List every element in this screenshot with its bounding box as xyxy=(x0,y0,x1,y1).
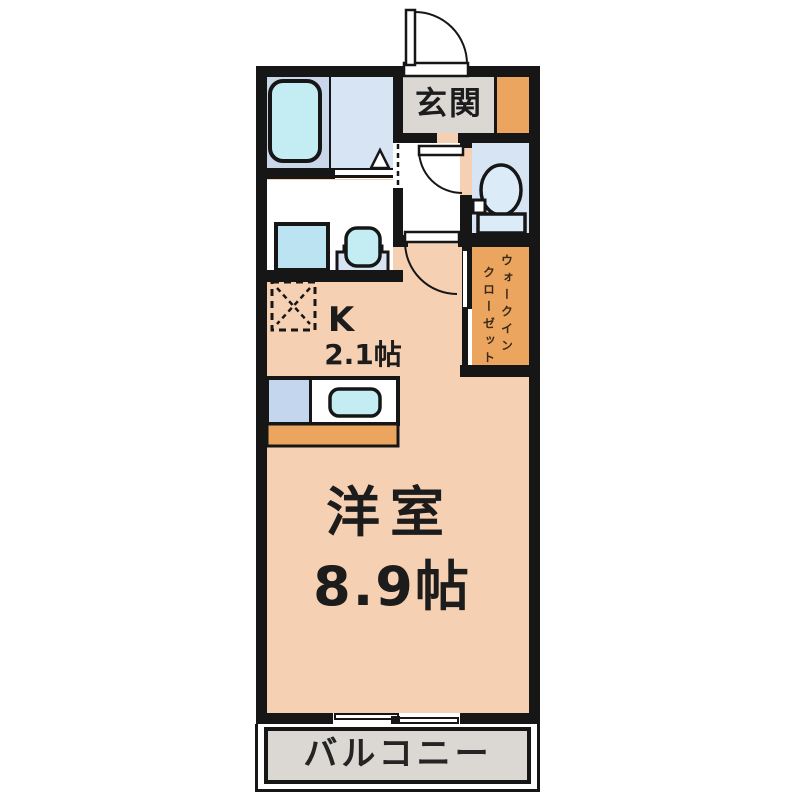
shoe-cabinet xyxy=(497,77,529,133)
bathtub xyxy=(270,81,320,161)
wall-entrance-bottom xyxy=(396,133,437,143)
wic-label-line2: クローゼット xyxy=(481,266,498,368)
kitchen-abbr-label: K xyxy=(328,303,354,337)
balcony-label: バルコニー xyxy=(303,737,492,771)
kitchen-size-label: 2.1帖 xyxy=(324,341,402,369)
bathroom-divider-line xyxy=(329,77,331,168)
balcony-rail-bottom xyxy=(255,789,540,792)
main-room-label: 洋室 xyxy=(326,486,454,540)
kitchen-counter-divider xyxy=(309,378,312,424)
entrance-door-leaf xyxy=(406,10,415,65)
bathroom-threshold-line-top xyxy=(335,168,396,170)
bathroom-floor xyxy=(331,77,396,168)
kitchen-counter-left-cell xyxy=(269,380,309,422)
shoe-cabinet-divider xyxy=(494,77,497,133)
kitchen-sink xyxy=(330,389,380,416)
wall-toilet-left-lower xyxy=(460,195,472,233)
bathroom-threshold-line-bottom xyxy=(335,175,396,178)
washing-machine-pan xyxy=(276,224,328,270)
floorplan: 玄関 K 2.1帖 洋室 8.9帖 バルコニー ウォークイン クローゼット xyxy=(0,0,800,800)
wall-bathroom-bottom xyxy=(267,168,335,179)
washbasin-bowl xyxy=(346,228,380,266)
wall-washroom-bottom xyxy=(256,270,403,282)
wic-sliding-door-panel-2 xyxy=(468,309,472,367)
entrance-door-swing-arc xyxy=(415,12,467,64)
window-sliding-panel-2 xyxy=(395,718,458,723)
toilet-door-leaf xyxy=(419,146,463,155)
wall-bottom-right xyxy=(460,713,540,724)
floorplan-drawing xyxy=(0,0,800,800)
balcony-rail-right xyxy=(537,724,540,792)
kitchen-counter-front xyxy=(267,424,398,446)
wall-washroom-hall-lower xyxy=(393,188,403,235)
window-sliding-panel-1 xyxy=(335,714,398,719)
wic-label-line1: ウォークイン xyxy=(499,254,516,356)
toilet-control-box xyxy=(473,200,485,213)
entrance-label: 玄関 xyxy=(415,87,483,119)
window-meeting-stile xyxy=(391,716,400,724)
wall-toilet-bottom xyxy=(458,233,529,247)
wall-right xyxy=(529,66,540,724)
main-room-size-label: 8.9帖 xyxy=(313,560,471,614)
room-door-leaf xyxy=(405,232,459,242)
wic-sliding-door-panel-1 xyxy=(463,251,467,307)
toilet-bowl xyxy=(481,165,521,215)
wall-left xyxy=(256,66,267,724)
toilet-base xyxy=(478,214,525,233)
balcony-rail-left xyxy=(255,724,258,792)
wall-top-left xyxy=(256,66,405,77)
wall-bottom-left xyxy=(256,713,333,724)
